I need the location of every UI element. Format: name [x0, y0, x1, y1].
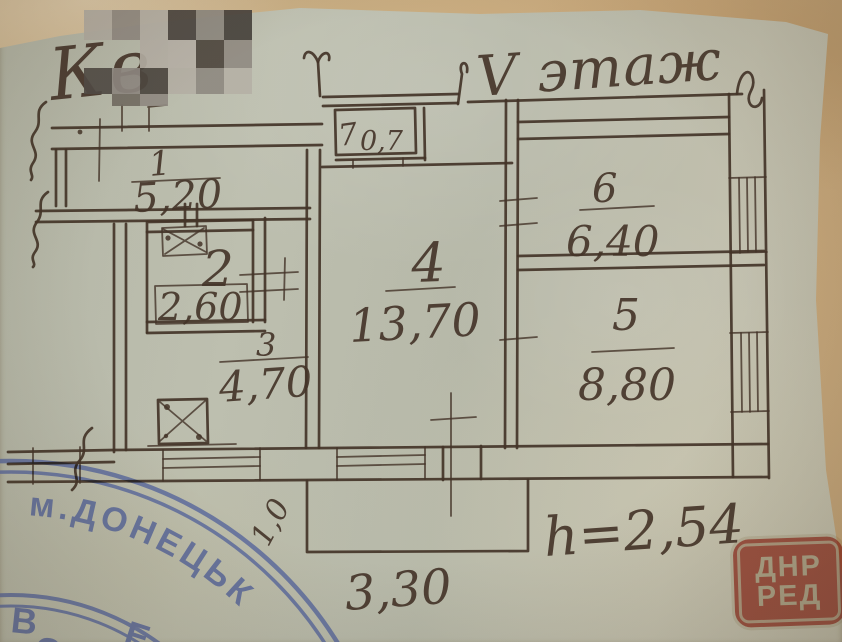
corner-flourish-top-right — [737, 72, 762, 107]
room-2-area-label: 2,60 — [157, 285, 243, 329]
window-symbol-room5 — [730, 332, 769, 412]
room-7-area-label: 0,7 — [360, 126, 404, 157]
balcony-width-label: 3,30 — [343, 559, 454, 622]
left-outer-wall — [114, 224, 126, 452]
room-4-area-label: 13,70 — [348, 292, 482, 353]
balcony-depth-label: 1,0 — [244, 493, 297, 552]
room-3-area-label: 4,70 — [216, 357, 314, 412]
wall-break-mark-top — [31, 102, 46, 180]
door-swing-mark-top — [458, 63, 467, 104]
watermark-line2: РЕД — [756, 581, 822, 611]
stamp-city-text: м.ДОНЕЦЬК — [28, 485, 263, 615]
wall-break-mark-middle — [33, 192, 48, 267]
room-7-number-label: 7 — [336, 116, 361, 153]
room-6-area-label: 6,40 — [566, 217, 660, 266]
balcony-outline — [307, 480, 528, 552]
photo-of-floor-plan-sheet: Кв V этаж 1 5,20 2 2,60 3 4,70 4 13,70 5… — [0, 0, 842, 642]
ceiling-height-label: h=2,54 — [542, 492, 746, 569]
floor-note-label: V этаж — [474, 28, 724, 110]
stamp-city-textpath: м.ДОНЕЦЬК — [28, 485, 263, 615]
room-4-number-label: 4 — [409, 231, 447, 295]
room4-top-wall — [322, 163, 512, 167]
room-1-area-label: 5,20 — [132, 171, 223, 222]
censored-apartment-number — [84, 10, 252, 106]
watermark-badge: ДНР РЕД — [732, 536, 842, 628]
watermark-badge-frame: ДНР РЕД — [737, 540, 842, 624]
window-symbol-room6 — [729, 177, 767, 253]
right-exterior-wall — [729, 90, 769, 478]
balcony-door-marks — [431, 393, 481, 516]
room-5-number-label: 5 — [612, 290, 640, 341]
room4-right-wall — [500, 100, 537, 448]
room-5-fraction-line — [592, 348, 674, 352]
room-5-area-label: 8,80 — [578, 360, 676, 411]
window-symbol-bottom-left — [163, 448, 260, 481]
room-6-number-label: 6 — [592, 166, 617, 212]
window-symbol-bottom-center — [337, 447, 425, 480]
door-opening-marks-corridor — [240, 258, 298, 300]
stamp-partial-letter-1: В — [9, 599, 39, 642]
